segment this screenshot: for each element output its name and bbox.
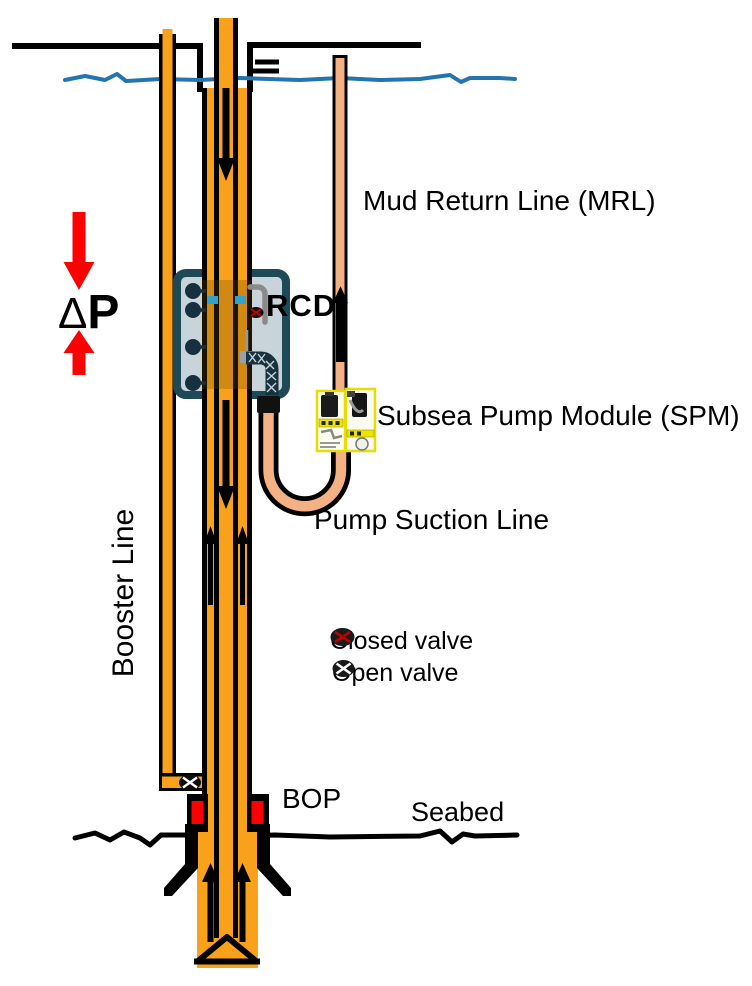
mud-return-pipe — [333, 55, 349, 395]
bell-nipple-outlet — [249, 62, 279, 71]
pressure-symbol: P — [87, 286, 119, 339]
bop-label: BOP — [282, 784, 341, 813]
booster-line-pipe — [159, 29, 207, 791]
open-valve-icon — [332, 659, 355, 678]
water-line — [65, 74, 515, 82]
subsea-pump-module — [317, 389, 375, 451]
mud-return-line-label: Mud Return Line (MRL) — [363, 186, 656, 215]
seabed-label: Seabed — [411, 798, 504, 826]
legend-open-valve: Open valve — [332, 659, 458, 688]
closed-valve-icon-rcd — [249, 307, 264, 318]
rcd-seal-left — [207, 296, 218, 304]
booster-line-label: Booster Line — [108, 463, 146, 723]
legend-closed-valve: Closed valve — [330, 627, 473, 656]
subsea-pump-module-label: Subsea Pump Module (SPM) — [377, 401, 740, 430]
pressure-down-arrow — [64, 212, 95, 290]
suction-line-collar — [257, 396, 280, 413]
open-valve-icon-booster — [179, 775, 201, 791]
pump-suction-line-label: Pump Suction Line — [314, 505, 549, 534]
rcd-seal-right — [235, 296, 246, 304]
delta-p-label: ΔP — [58, 288, 119, 338]
rcd-label: RCD — [266, 290, 336, 323]
subsea-mudlift-diagram: Mud Return Line (MRL) RCD Subsea Pump Mo… — [0, 0, 752, 986]
seabed-line — [75, 831, 517, 845]
delta-symbol: Δ — [58, 289, 87, 338]
closed-valve-icon — [330, 627, 355, 647]
